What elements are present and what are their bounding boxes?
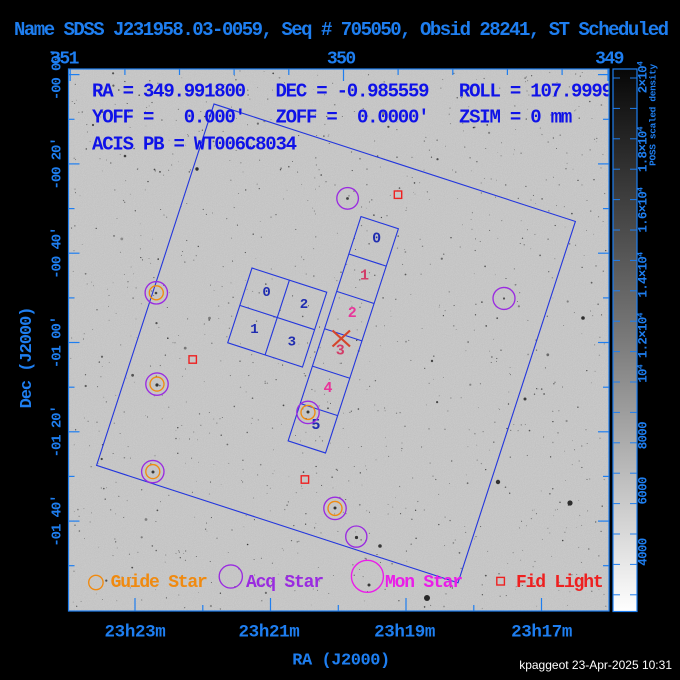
svg-text:Fid Light: Fid Light: [516, 573, 603, 593]
svg-text:Acq Star: Acq Star: [246, 573, 323, 593]
svg-text:6000: 6000: [637, 477, 651, 504]
svg-text:3: 3: [336, 343, 345, 360]
svg-text:-00 40': -00 40': [50, 228, 66, 279]
svg-text:23h17m: 23h17m: [511, 623, 572, 643]
svg-text:350: 350: [327, 50, 356, 70]
svg-text:Dec (J2000): Dec (J2000): [18, 308, 37, 409]
svg-text:-00 20': -00 20': [50, 138, 66, 189]
svg-text:-01 20': -01 20': [50, 406, 66, 457]
svg-text:2: 2: [348, 305, 357, 322]
svg-text:1: 1: [360, 268, 369, 285]
svg-text:POSS scaled density: POSS scaled density: [648, 64, 659, 166]
svg-text:349: 349: [595, 50, 624, 70]
svg-text:Name SDSS J231958.03-0059, Seq: Name SDSS J231958.03-0059, Seq # 705050,…: [14, 19, 669, 41]
svg-text:8000: 8000: [637, 422, 651, 449]
svg-text:1.2×104: 1.2×104: [636, 312, 650, 358]
svg-text:23h21m: 23h21m: [239, 623, 300, 643]
svg-text:0: 0: [262, 285, 270, 301]
svg-text:1: 1: [250, 322, 258, 338]
svg-text:4000: 4000: [637, 538, 651, 565]
svg-text:3: 3: [288, 334, 296, 350]
svg-text:Mon Star: Mon Star: [385, 573, 462, 593]
svg-text:RA (J2000): RA (J2000): [292, 652, 390, 671]
svg-text:-01 00': -01 00': [50, 317, 66, 368]
svg-text:-00 00': -00 00': [50, 49, 66, 100]
svg-text:kpaggeot 23-Apr-2025 10:31: kpaggeot 23-Apr-2025 10:31: [519, 658, 672, 672]
svg-text:4: 4: [323, 380, 332, 397]
svg-text:RA = 349.991800 DEC = -0.985: RA = 349.991800 DEC = -0.985559 ROLL = 1…: [92, 81, 613, 103]
svg-text:Guide Star: Guide Star: [111, 573, 207, 593]
svg-text:23h23m: 23h23m: [105, 623, 166, 643]
svg-text:1.6×104: 1.6×104: [636, 187, 650, 233]
svg-text:23h19m: 23h19m: [374, 623, 435, 643]
svg-text:2: 2: [300, 297, 308, 313]
svg-text:1.4×104: 1.4×104: [636, 252, 650, 298]
svg-text:YOFF = 0.000' ZOFF = 0.00: YOFF = 0.000' ZOFF = 0.0000' ZSIM = 0 mm: [92, 107, 572, 129]
svg-text:-01 40': -01 40': [50, 496, 66, 547]
svg-text:ACIS PB = WT006C8034: ACIS PB = WT006C8034: [92, 134, 297, 156]
svg-text:0: 0: [372, 230, 381, 247]
